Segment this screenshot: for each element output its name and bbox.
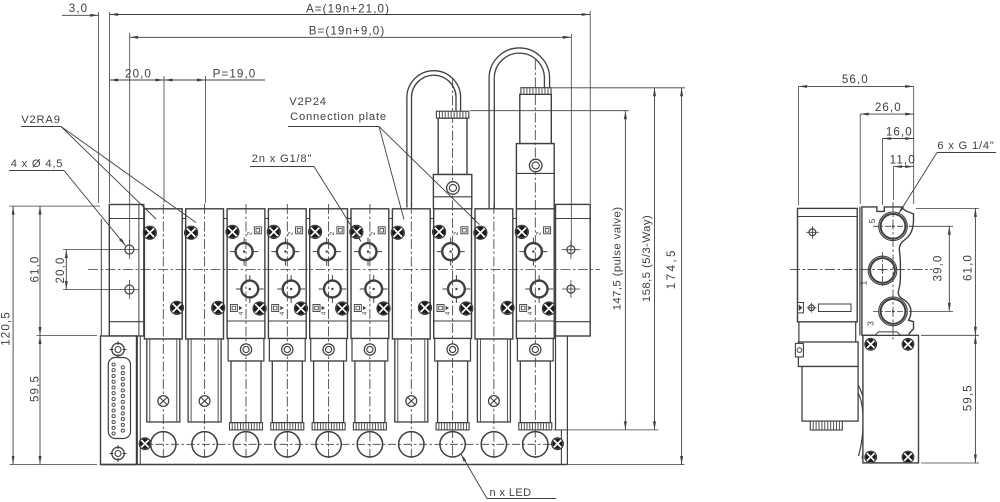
svg-text:3: 3 <box>866 321 876 326</box>
svg-text:20,0: 20,0 <box>54 257 67 284</box>
svg-text:11,0: 11,0 <box>890 154 916 167</box>
svg-text:2: 2 <box>246 231 253 235</box>
svg-text:2: 2 <box>288 231 295 235</box>
svg-text:2: 2 <box>536 231 543 235</box>
svg-text:61,0: 61,0 <box>28 256 41 283</box>
svg-text:39,0: 39,0 <box>932 255 945 282</box>
svg-text:4 x Ø 4,5: 4 x Ø 4,5 <box>11 158 64 170</box>
svg-text:2: 2 <box>370 231 377 235</box>
svg-text:1: 1 <box>859 280 869 285</box>
svg-text:158,5 (5/3-Way): 158,5 (5/3-Way) <box>641 215 653 302</box>
svg-text:61,0: 61,0 <box>961 254 974 281</box>
svg-text:59,5: 59,5 <box>28 375 41 402</box>
svg-text:59,5: 59,5 <box>961 384 974 411</box>
svg-text:B=(19n+9,0): B=(19n+9,0) <box>309 25 386 38</box>
svg-text:V2P24: V2P24 <box>289 96 327 108</box>
svg-text:2n x G1/8": 2n x G1/8" <box>252 153 312 165</box>
svg-text:147,5 (pulse valve): 147,5 (pulse valve) <box>612 207 624 311</box>
svg-text:5: 5 <box>867 218 877 223</box>
svg-text:26,0: 26,0 <box>875 101 902 114</box>
svg-text:6 x G 1/4": 6 x G 1/4" <box>937 140 994 152</box>
svg-text:16,0: 16,0 <box>886 126 913 139</box>
svg-text:3,0: 3,0 <box>69 2 88 15</box>
svg-text:56,0: 56,0 <box>842 73 869 86</box>
svg-text:V2RA9: V2RA9 <box>21 114 60 126</box>
svg-text:P=19,0: P=19,0 <box>213 68 257 81</box>
svg-text:2: 2 <box>453 231 460 235</box>
svg-text:A=(19n+21,0): A=(19n+21,0) <box>306 3 390 16</box>
svg-text:120,5: 120,5 <box>0 311 13 346</box>
svg-text:Connection plate: Connection plate <box>290 111 387 123</box>
svg-text:2: 2 <box>329 231 336 235</box>
svg-text:n x LED: n x LED <box>490 487 532 499</box>
svg-text:20,0: 20,0 <box>125 68 152 81</box>
svg-text:174,5: 174,5 <box>665 248 678 289</box>
